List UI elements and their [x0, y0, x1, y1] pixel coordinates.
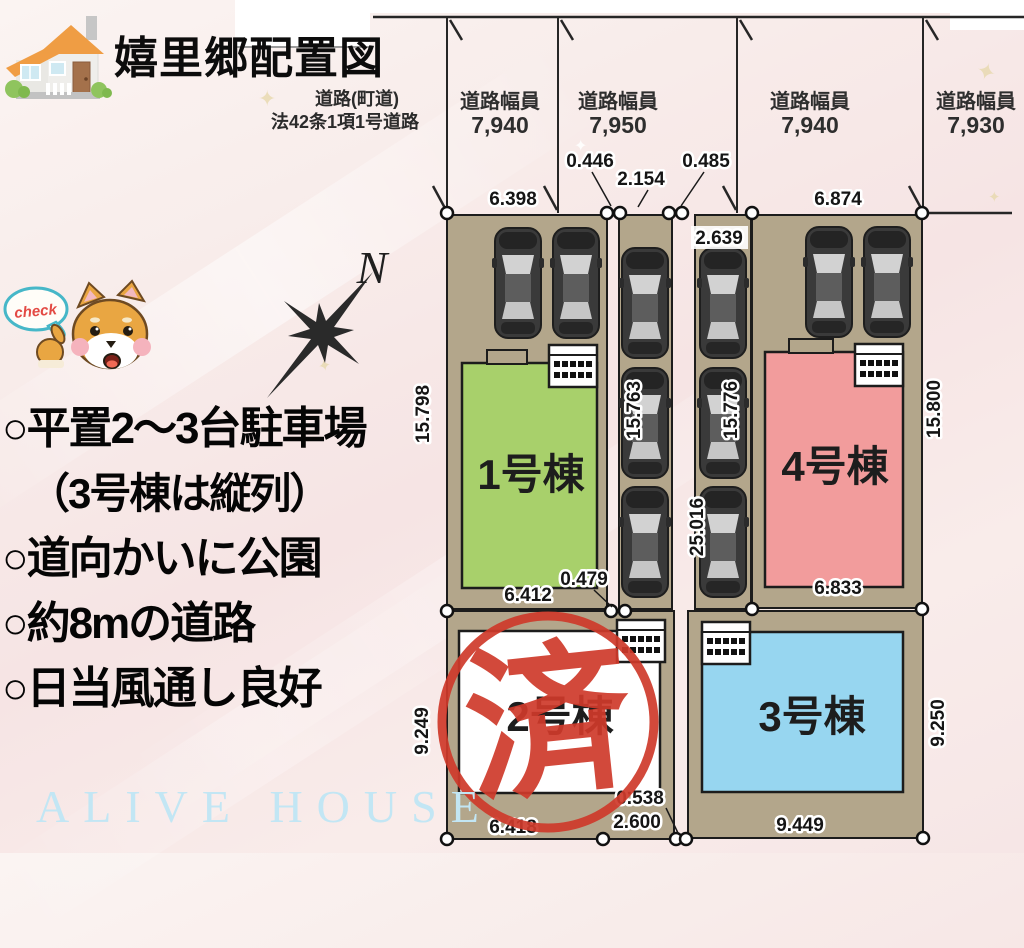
compass-n-label: N	[356, 242, 390, 293]
note-line: ○約8mの道路	[2, 591, 366, 656]
road-width-label: 道路幅員	[936, 89, 1016, 113]
mascot-dog: check	[5, 281, 151, 369]
dim-strip2-length: 15.763	[624, 381, 645, 439]
flyer-page: { "page": { "title": "嬉里郷配置図", "watermar…	[0, 0, 1024, 853]
dim-top-gap2: 0.485	[682, 151, 730, 172]
road-name-line2: 法42条1項1号道路	[271, 111, 420, 132]
dim-strip3-total: 25.016	[687, 498, 708, 556]
dim-top-lot4: 6.874	[814, 189, 862, 210]
feature-notes: ○平置2〜3台駐車場 （3号棟は縦列） ○道向かいに公園 ○約8mの道路 ○日当…	[2, 396, 366, 721]
dim-right-lot3: 9.250	[928, 699, 949, 747]
road-name-line1: 道路(町道)	[315, 88, 399, 109]
road-width-value: 7,930	[947, 112, 1005, 138]
road-width-label: 道路幅員	[460, 89, 540, 113]
page-title: 嬉里郷配置図	[114, 22, 384, 86]
dim-top-lot1: 6.398	[489, 189, 537, 210]
building-1-balcony	[549, 345, 597, 387]
note-line: （3号棟は縦列）	[2, 461, 366, 526]
building-4-porch	[789, 339, 833, 353]
dim-bottom-strip3: 2.600	[613, 812, 661, 833]
dim-left-lot2: 9.249	[412, 707, 433, 755]
building-3-label: 3号棟	[758, 693, 866, 740]
building-2-balcony	[617, 620, 665, 662]
dim-top-strip3: 2.639	[695, 228, 743, 249]
building-1-label: 1号棟	[477, 451, 585, 498]
road-name-label: 道路(町道) 法42条1項1号道路	[271, 88, 420, 132]
building-1-porch	[487, 350, 527, 364]
building-4-balcony	[855, 344, 903, 386]
car-icon	[803, 227, 855, 337]
road-width-value: 7,950	[589, 112, 647, 138]
road-width-value: 7,940	[471, 112, 529, 138]
car-icon	[619, 248, 671, 358]
building-4-label: 4号棟	[781, 443, 889, 490]
car-icon	[619, 487, 671, 597]
watermark: ALIVE HOUSE	[36, 780, 493, 833]
dim-bottom-lot4: 6.833	[814, 578, 862, 599]
building-3-balcony	[702, 622, 750, 664]
dim-bottom-lot1: 6.412	[504, 585, 552, 606]
car-icon	[697, 248, 749, 358]
note-line: ○日当風通し良好	[2, 656, 366, 721]
dim-top-strip2: 2.154	[617, 169, 665, 190]
compass-north: N	[267, 242, 390, 398]
dim-right-lot4: 15.800	[924, 380, 945, 438]
house-icon	[5, 16, 112, 99]
note-line: ○道向かいに公園	[2, 526, 366, 591]
road-width-label: 道路幅員	[770, 89, 850, 113]
dim-bottom-gap1: 0.479	[560, 569, 608, 590]
dim-bottom-lot3: 9.449	[776, 815, 824, 836]
dim-strip3-length: 15.776	[721, 381, 742, 439]
car-icon	[492, 228, 544, 338]
road-width-label: 道路幅員	[578, 89, 658, 113]
road-width-value: 7,940	[781, 112, 839, 138]
dim-left-lot1: 15.798	[413, 385, 434, 443]
dim-top-gap1: 0.446	[566, 151, 614, 172]
note-line: ○平置2〜3台駐車場	[2, 396, 366, 461]
car-icon	[550, 228, 602, 338]
car-icon	[861, 227, 913, 337]
